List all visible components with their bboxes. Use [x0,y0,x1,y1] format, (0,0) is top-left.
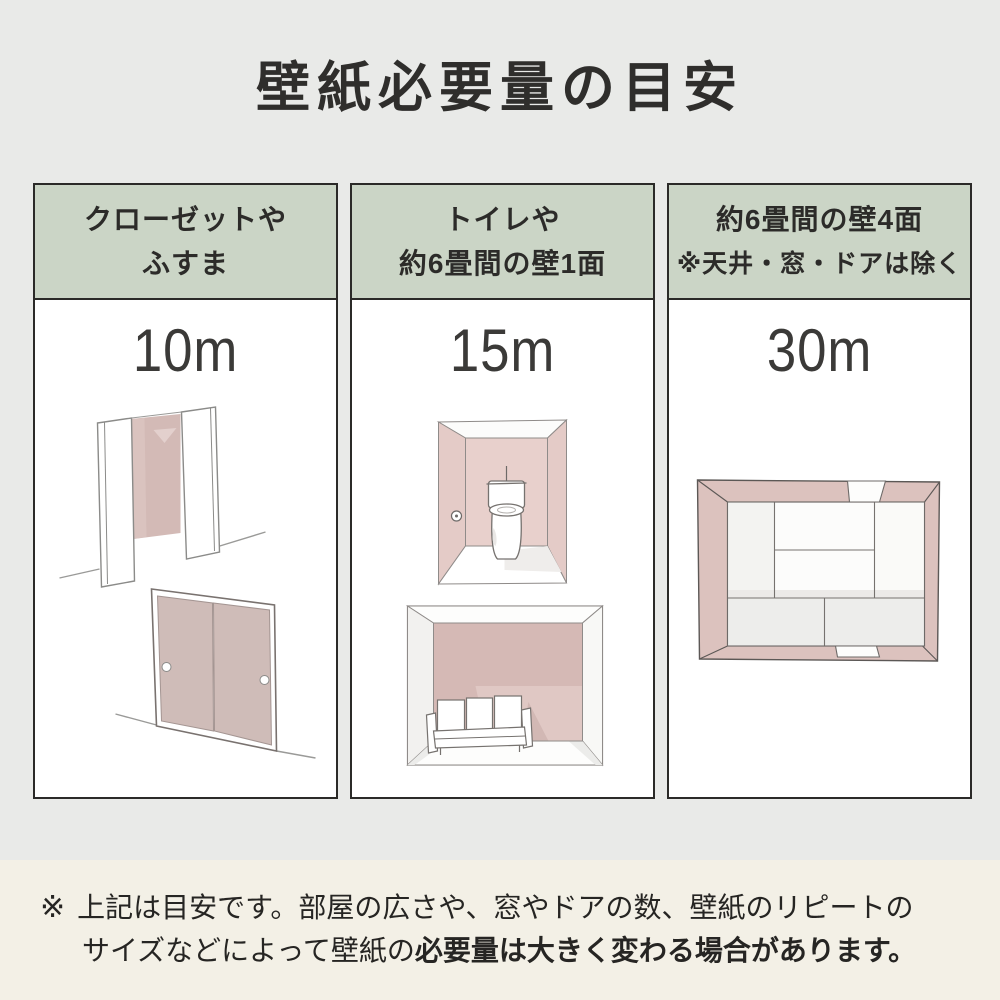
column-header-closet-fusuma: クローゼットや ふすま [35,185,336,300]
header-line: クローゼットや [84,198,287,242]
closet-open-doors-illustration [35,400,336,600]
column-closet-fusuma: クローゼットや ふすま 10m [33,183,338,799]
column-body: 10m [35,300,336,797]
column-header-four-walls: 約6畳間の壁4面 ※天井・窓・ドアは除く [669,185,970,300]
header-line: 約6畳間の壁1面 [399,242,606,286]
page-title: 壁紙必要量の目安 [0,0,1000,183]
six-tatami-room-top-view-illustration [669,473,970,688]
header-line: トイレや [444,198,560,242]
column-four-walls: 約6畳間の壁4面 ※天井・窓・ドアは除く 30m [667,183,972,799]
toilet-room-illustration [352,418,653,593]
footnote: ※上記は目安です。部屋の広さや、窓やドアの数、壁紙のリピートの サイズなどによっ… [0,860,1000,1000]
fusuma-sliding-doors-illustration [35,583,336,798]
column-body: 30m [669,300,970,797]
amount-label: 15m [370,316,635,385]
column-toilet-one-wall: トイレや 約6畳間の壁1面 15m [350,183,655,799]
header-line: 約6畳間の壁4面 [716,198,923,242]
guide-columns: クローゼットや ふすま 10m [33,183,972,799]
amount-label: 10m [53,316,318,385]
header-line: ※天井・窓・ドアは除く [677,242,962,286]
reference-mark: ※ [40,891,65,924]
column-body: 15m [352,300,653,797]
footnote-line-1: ※上記は目安です。部屋の広さや、窓やドアの数、壁紙のリピートの [40,886,970,929]
room-one-accent-wall-illustration [352,598,653,788]
column-header-toilet: トイレや 約6畳間の壁1面 [352,185,653,300]
footnote-line-2: サイズなどによって壁紙の必要量は大きく変わる場合があります。 [82,929,970,972]
amount-label: 30m [687,316,952,385]
header-line: ふすま [142,242,229,286]
